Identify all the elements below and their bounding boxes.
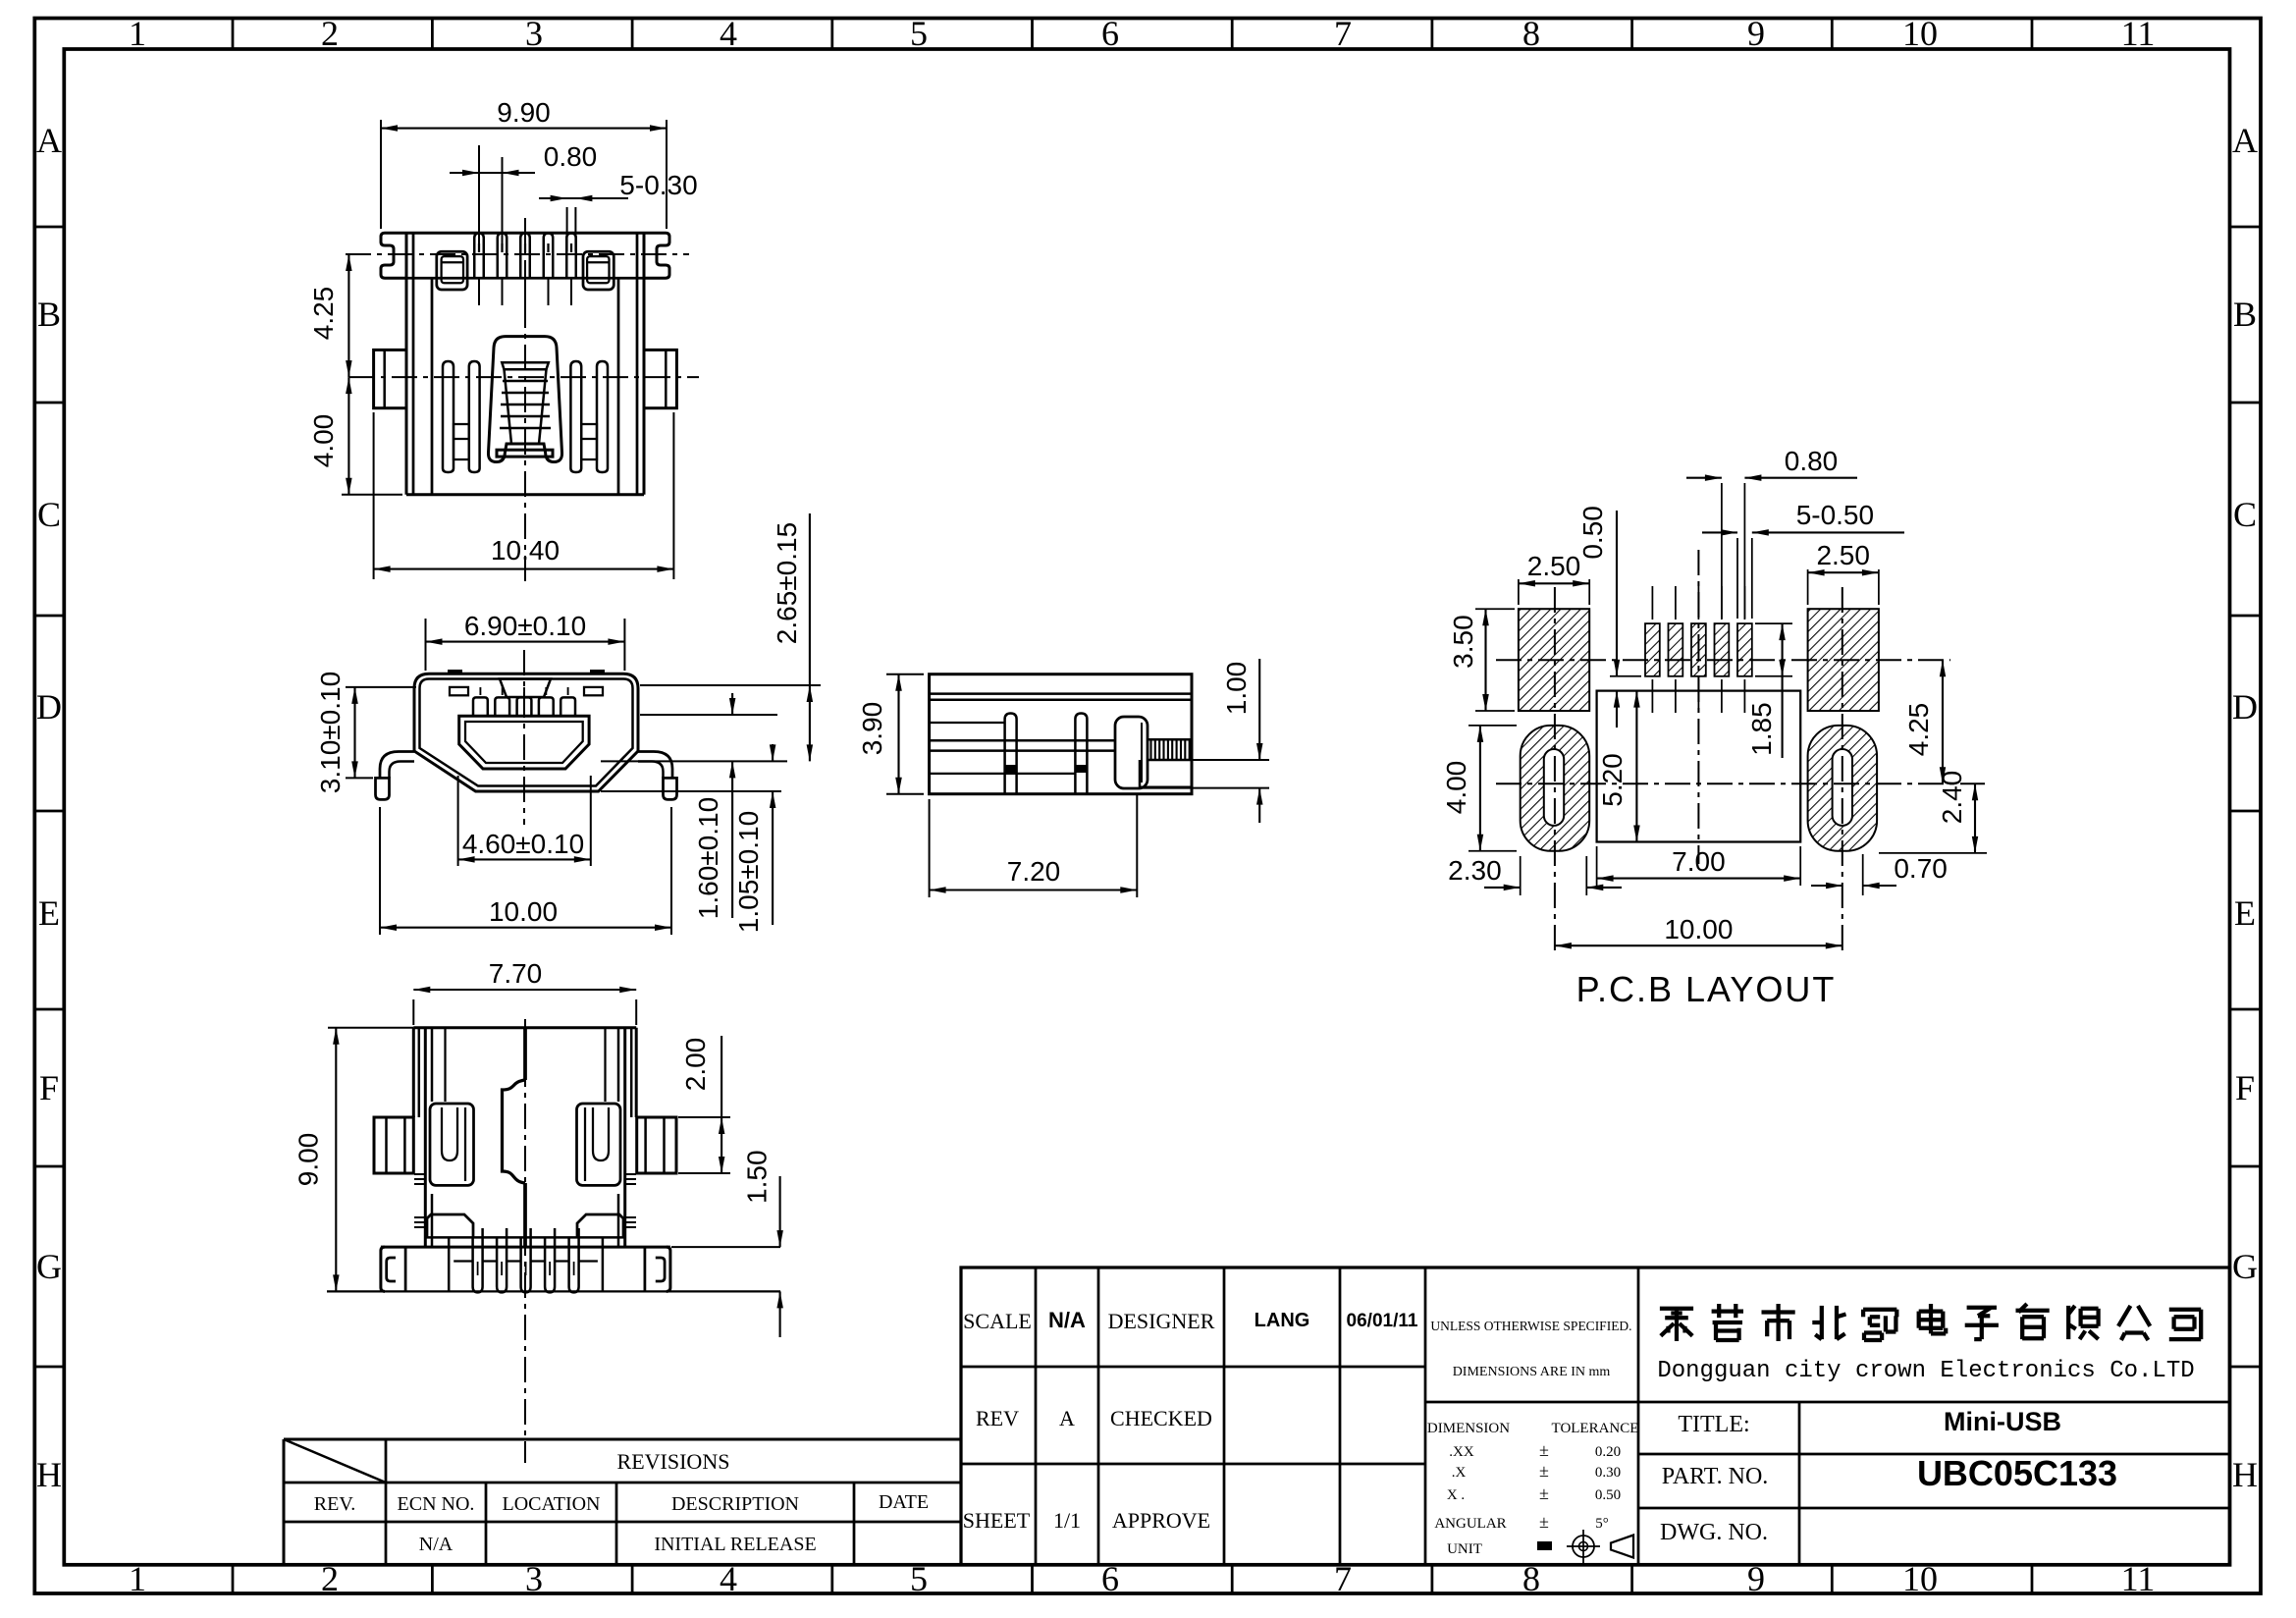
svg-text:10.00: 10.00 [1664,914,1733,944]
svg-text:SHEET: SHEET [963,1508,1031,1533]
svg-text:±: ± [1539,1440,1549,1460]
svg-text:H: H [36,1455,62,1494]
svg-text:5.20: 5.20 [1597,753,1628,807]
svg-text:3.50: 3.50 [1448,615,1478,669]
svg-text:INITIAL RELEASE: INITIAL RELEASE [654,1534,816,1555]
svg-text:06/01/11: 06/01/11 [1347,1311,1418,1331]
svg-text:0.50: 0.50 [1577,506,1608,560]
svg-text:D: D [36,687,62,727]
svg-text:F: F [39,1068,59,1107]
svg-text:UNLESS OTHERWISE SPECIFIED.: UNLESS OTHERWISE SPECIFIED. [1430,1319,1631,1333]
svg-text:P.C.B LAYOUT: P.C.B LAYOUT [1576,969,1837,1009]
svg-text:D: D [2232,687,2258,727]
svg-text:1: 1 [129,1559,146,1598]
svg-text:7.70: 7.70 [489,958,543,989]
svg-text:0.20: 0.20 [1595,1444,1621,1460]
svg-text:N/A: N/A [419,1534,454,1555]
svg-text:H: H [2232,1455,2258,1494]
svg-text:2.65±0.15: 2.65±0.15 [772,522,802,644]
svg-text:CHECKED: CHECKED [1110,1406,1212,1430]
svg-text:1: 1 [129,14,146,53]
svg-text:1.50: 1.50 [742,1150,773,1204]
svg-text:ANGULAR: ANGULAR [1434,1516,1506,1532]
svg-text:4.60±0.10: 4.60±0.10 [462,829,584,859]
svg-text:2.30: 2.30 [1448,855,1502,886]
svg-text:SCALE: SCALE [963,1309,1032,1333]
svg-text:1/1: 1/1 [1053,1508,1081,1533]
svg-text:1.00: 1.00 [1221,662,1252,716]
svg-text:2.50: 2.50 [1816,540,1870,570]
svg-text:B: B [37,295,61,334]
svg-text:2: 2 [321,14,339,53]
svg-text:5-0.30: 5-0.30 [619,170,697,200]
svg-text:10.40: 10.40 [491,535,560,566]
svg-text:G: G [36,1247,62,1286]
svg-text:UNIT: UNIT [1447,1541,1482,1557]
svg-text:1.60±0.10: 1.60±0.10 [693,797,723,919]
svg-text:ECN NO.: ECN NO. [398,1493,475,1515]
svg-text:2: 2 [321,1559,339,1598]
svg-text:Mini-USB: Mini-USB [1944,1407,2061,1436]
svg-text:7: 7 [1334,14,1352,53]
svg-text:E: E [2234,893,2256,933]
svg-text:DESCRIPTION: DESCRIPTION [671,1493,799,1515]
svg-text:DESIGNER: DESIGNER [1108,1309,1215,1333]
svg-text:PART. NO.: PART. NO. [1662,1464,1769,1489]
svg-text:DWG. NO.: DWG. NO. [1660,1520,1768,1545]
svg-text:5: 5 [910,1559,928,1598]
svg-text:9.90: 9.90 [497,97,551,128]
svg-text:2.50: 2.50 [1527,551,1581,581]
svg-text:±: ± [1539,1483,1549,1503]
svg-text:C: C [37,495,61,534]
svg-text:DIMENSIONS ARE IN mm: DIMENSIONS ARE IN mm [1453,1365,1611,1379]
svg-text:±: ± [1539,1461,1549,1481]
svg-text:DATE: DATE [879,1491,929,1513]
svg-text:REV: REV [976,1406,1019,1430]
svg-text:3.10±0.10: 3.10±0.10 [315,672,346,793]
svg-text:3: 3 [525,14,543,53]
svg-text:4.25: 4.25 [1903,703,1934,757]
svg-text:DIMENSION: DIMENSION [1427,1421,1510,1436]
svg-text:APPROVE: APPROVE [1112,1508,1210,1533]
svg-text:REVISIONS: REVISIONS [617,1449,730,1474]
svg-text:0.80: 0.80 [1785,446,1839,476]
svg-text:B: B [2233,295,2257,334]
svg-text:0.50: 0.50 [1595,1487,1621,1503]
svg-text:TOLERANCE: TOLERANCE [1552,1421,1639,1436]
svg-text:LANG: LANG [1255,1310,1310,1331]
svg-text:1.85: 1.85 [1746,702,1777,756]
svg-text:A: A [1059,1406,1075,1430]
svg-text:5: 5 [910,14,928,53]
svg-text:G: G [2232,1247,2258,1286]
svg-text:0.30: 0.30 [1595,1465,1621,1481]
svg-text:1.05±0.10: 1.05±0.10 [733,811,764,933]
svg-text:11: 11 [2121,14,2156,53]
svg-text:4.00: 4.00 [1441,761,1471,815]
svg-text:Dongguan city crown Electronic: Dongguan city crown Electronics Co.LTD [1657,1358,2194,1384]
svg-text:9.00: 9.00 [293,1133,323,1187]
svg-text:UBC05C133: UBC05C133 [1917,1453,2117,1493]
svg-text:.X: .X [1452,1465,1467,1481]
svg-text:6.90±0.10: 6.90±0.10 [464,611,586,641]
svg-text:X .: X . [1447,1487,1465,1503]
svg-text:10: 10 [1902,14,1938,53]
svg-text:4.00: 4.00 [308,414,339,468]
svg-text:A: A [36,121,62,160]
svg-text:4: 4 [720,14,737,53]
svg-text:±: ± [1539,1512,1549,1532]
svg-text:E: E [38,893,60,933]
svg-text:LOCATION: LOCATION [503,1493,601,1515]
svg-text:3.90: 3.90 [857,702,887,756]
svg-text:N/A: N/A [1048,1308,1086,1332]
svg-text:9: 9 [1747,14,1765,53]
svg-text:0.70: 0.70 [1894,853,1948,884]
svg-text:2.00: 2.00 [680,1038,711,1092]
svg-text:10.00: 10.00 [489,896,558,927]
svg-text:2.40: 2.40 [1937,771,1967,825]
svg-text:7.20: 7.20 [1007,856,1061,887]
svg-text:REV.: REV. [314,1493,355,1515]
svg-text:0.80: 0.80 [544,141,598,172]
svg-text:6: 6 [1101,14,1119,53]
svg-text:F: F [2235,1068,2255,1107]
svg-text:A: A [2232,121,2258,160]
svg-text:4.25: 4.25 [308,287,339,341]
svg-text:8: 8 [1522,14,1540,53]
svg-text:3: 3 [525,1559,543,1598]
svg-text:5-0.50: 5-0.50 [1796,500,1874,530]
svg-text:TITLE:: TITLE: [1678,1412,1749,1437]
svg-text:C: C [2233,495,2257,534]
svg-text:5°: 5° [1595,1516,1609,1532]
svg-text:4: 4 [720,1559,737,1598]
svg-text:7.00: 7.00 [1672,846,1726,877]
svg-text:.XX: .XX [1449,1444,1474,1460]
